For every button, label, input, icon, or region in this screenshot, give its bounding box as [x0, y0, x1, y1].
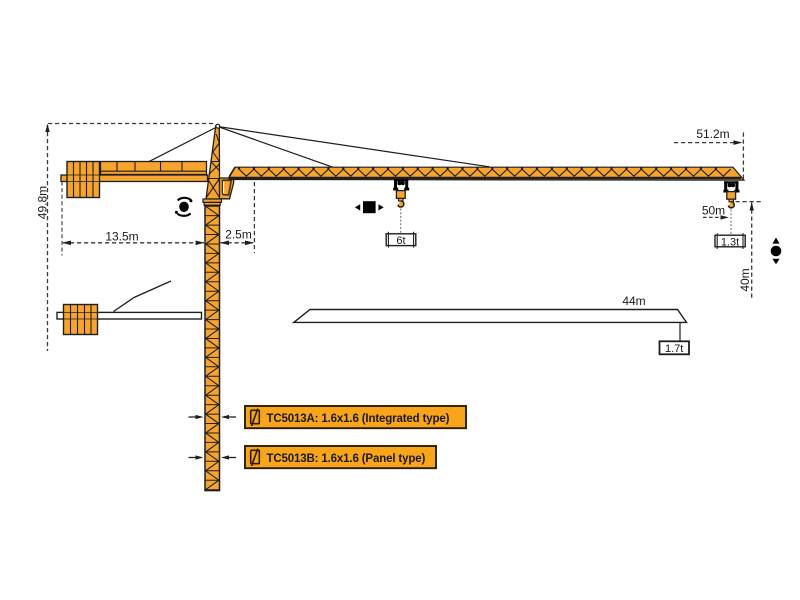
svg-text:TC5013A: 1.6x1.6 (Integrated: TC5013A: 1.6x1.6 (Integrated type) [267, 413, 450, 425]
svg-text:1.7t: 1.7t [665, 343, 683, 355]
svg-text:44m: 44m [622, 294, 645, 308]
svg-text:1.3t: 1.3t [721, 236, 739, 248]
svg-text:13.5m: 13.5m [105, 230, 138, 244]
svg-text:40m: 40m [738, 268, 752, 291]
svg-text:2.5m: 2.5m [225, 227, 252, 241]
svg-text:6t: 6t [396, 235, 405, 247]
svg-text:49.8m: 49.8m [35, 186, 49, 219]
svg-text:TC5013B: 1.6x1.6 (Panel type: TC5013B: 1.6x1.6 (Panel type) [267, 453, 426, 465]
svg-text:51.2m: 51.2m [696, 127, 729, 141]
svg-text:50m: 50m [702, 204, 725, 218]
